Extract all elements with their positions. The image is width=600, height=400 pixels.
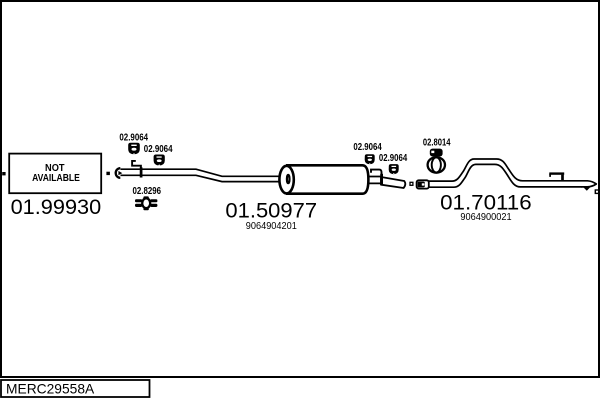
- svg-text:02.8014: 02.8014: [423, 137, 451, 149]
- svg-text:9064900021: 9064900021: [460, 212, 512, 223]
- svg-text:MERC29558A: MERC29558A: [6, 382, 95, 397]
- svg-text:01.99930: 01.99930: [11, 196, 102, 219]
- svg-text:9064904201: 9064904201: [246, 221, 297, 232]
- svg-text:02.9064: 02.9064: [379, 152, 407, 164]
- svg-text:02.9064: 02.9064: [353, 141, 381, 153]
- svg-text:02.8296: 02.8296: [133, 185, 162, 197]
- svg-text:01.50977: 01.50977: [225, 200, 317, 223]
- svg-text:AVAILABLE: AVAILABLE: [32, 173, 80, 184]
- svg-text:01.70116: 01.70116: [440, 191, 532, 214]
- svg-text:02.9064: 02.9064: [119, 132, 148, 144]
- svg-text:02.9064: 02.9064: [144, 143, 173, 155]
